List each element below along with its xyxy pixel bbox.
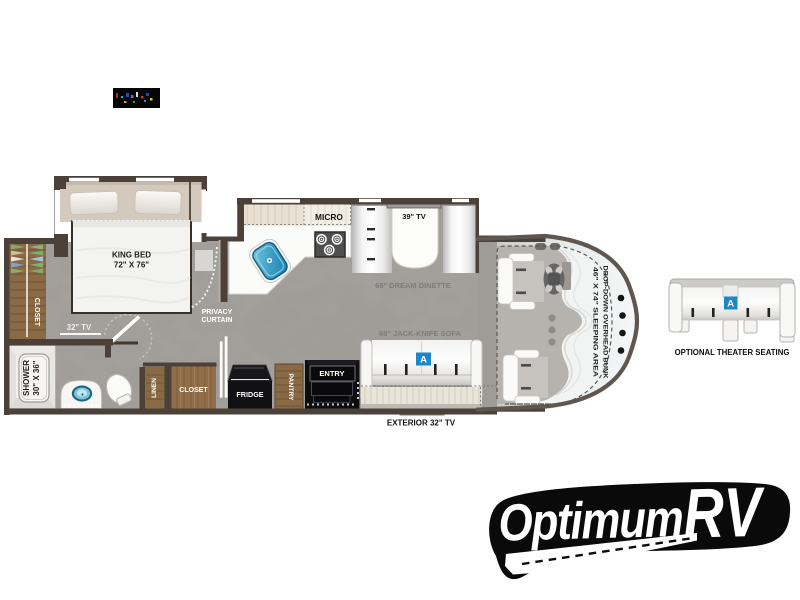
svg-text:68" DREAM DINETTE: 68" DREAM DINETTE	[375, 281, 451, 290]
svg-text:32" TV: 32" TV	[67, 323, 92, 332]
svg-text:KING BED: KING BED	[112, 251, 151, 260]
svg-text:PANTRY: PANTRY	[287, 373, 294, 401]
svg-text:46" X 74" SLEEPING AREA: 46" X 74" SLEEPING AREA	[592, 267, 599, 378]
svg-text:A: A	[420, 355, 427, 366]
svg-text:FRIDGE: FRIDGE	[236, 390, 263, 399]
svg-text:CLOSET: CLOSET	[179, 387, 208, 394]
svg-text:LINEN: LINEN	[151, 378, 158, 398]
svg-text:SHOWER: SHOWER	[22, 360, 31, 396]
svg-text:CLOSET: CLOSET	[33, 298, 40, 327]
svg-text:CURTAIN: CURTAIN	[202, 317, 233, 324]
svg-text:MICRO: MICRO	[315, 212, 343, 222]
svg-text:PRIVACY: PRIVACY	[202, 309, 233, 316]
svg-text:DROP-DOWN OVERHEAD BUNK: DROP-DOWN OVERHEAD BUNK	[602, 266, 609, 379]
svg-text:39" TV: 39" TV	[402, 212, 426, 221]
svg-text:A: A	[727, 299, 734, 310]
svg-text:30" X 36": 30" X 36"	[32, 360, 41, 395]
svg-text:EXTERIOR 32" TV: EXTERIOR 32" TV	[387, 419, 456, 428]
svg-text:OPTIONAL THEATER SEATING: OPTIONAL THEATER SEATING	[675, 348, 790, 357]
svg-text:72" X 76": 72" X 76"	[114, 261, 149, 270]
svg-text:68" JACK-KNIFE SOFA: 68" JACK-KNIFE SOFA	[379, 329, 461, 338]
svg-text:ENTRY: ENTRY	[319, 369, 344, 378]
